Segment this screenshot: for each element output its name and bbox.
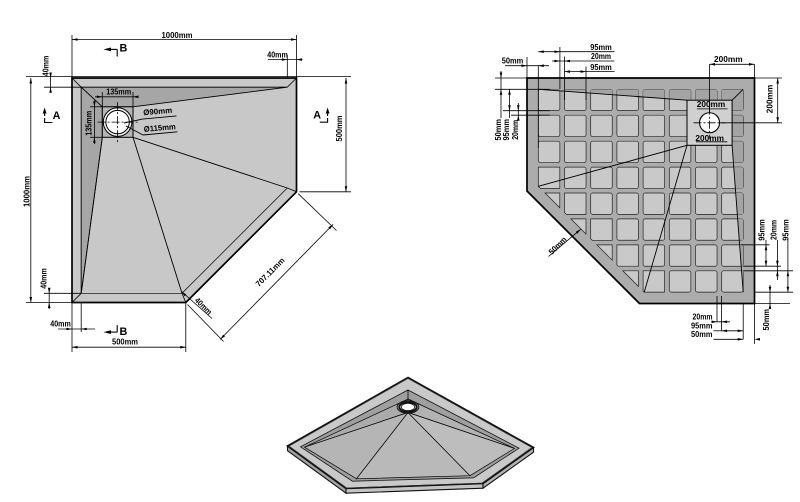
svg-text:200mm: 200mm [714,55,743,64]
svg-text:B: B [120,326,128,338]
svg-text:500mm: 500mm [112,338,138,347]
svg-text:200mm: 200mm [697,100,726,109]
svg-text:20mm: 20mm [591,52,611,61]
svg-text:707.11mm: 707.11mm [254,256,287,289]
svg-text:40mm: 40mm [267,51,288,60]
svg-text:A: A [313,110,321,122]
svg-text:20mm: 20mm [693,312,713,321]
svg-text:95mm: 95mm [781,219,790,241]
svg-text:40mm: 40mm [39,268,48,289]
svg-text:50mm: 50mm [691,330,713,339]
svg-text:1000mm: 1000mm [162,31,193,40]
svg-text:50mm: 50mm [502,57,524,66]
svg-text:135mm: 135mm [106,88,131,97]
svg-text:B: B [120,43,128,55]
svg-text:95mm: 95mm [590,43,612,52]
svg-text:500mm: 500mm [335,116,344,142]
svg-text:95mm: 95mm [757,219,766,241]
svg-text:1000mm: 1000mm [22,176,31,207]
svg-text:20mm: 20mm [511,120,520,140]
svg-text:135mm: 135mm [84,111,93,136]
svg-text:40mm: 40mm [42,56,51,77]
svg-text:A: A [53,110,61,122]
svg-text:20mm: 20mm [769,220,778,240]
svg-text:95mm: 95mm [502,119,511,141]
svg-text:200mm: 200mm [766,85,775,114]
svg-text:50mm: 50mm [547,235,569,257]
svg-text:40mm: 40mm [50,320,71,329]
svg-text:95mm: 95mm [590,63,612,72]
svg-text:50mm: 50mm [762,309,771,331]
